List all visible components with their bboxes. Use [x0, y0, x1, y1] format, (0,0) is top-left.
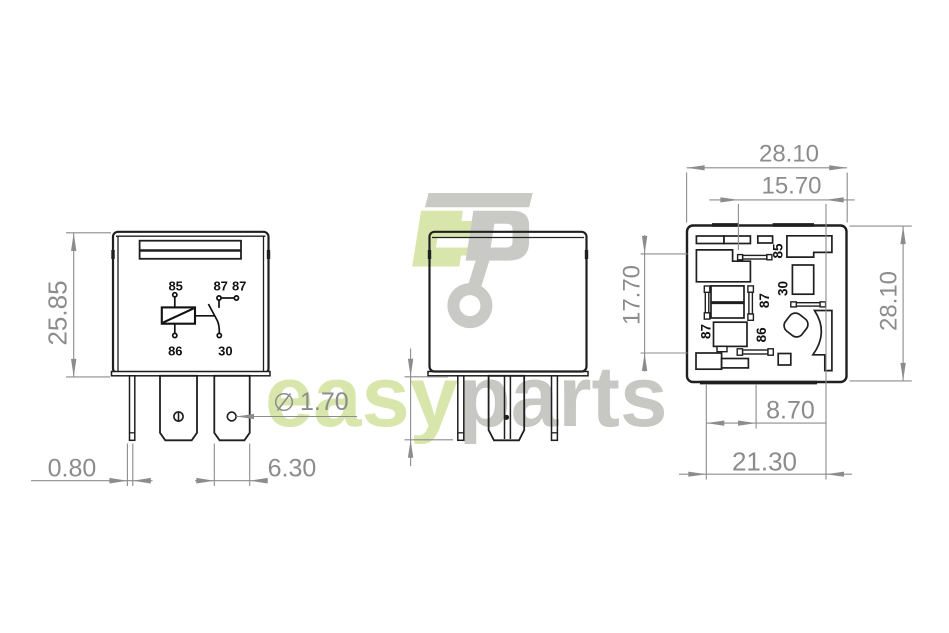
svg-text:28.10: 28.10 — [876, 271, 903, 331]
svg-text:86: 86 — [754, 327, 769, 343]
svg-text:86: 86 — [168, 343, 182, 358]
svg-text:30: 30 — [776, 281, 791, 296]
svg-text:1.70: 1.70 — [300, 388, 349, 416]
svg-text:87: 87 — [757, 293, 772, 308]
svg-text:15.70: 15.70 — [761, 173, 821, 200]
svg-text:28.10: 28.10 — [759, 141, 819, 168]
svg-text:85: 85 — [771, 243, 786, 259]
svg-text:25.85: 25.85 — [43, 280, 73, 345]
svg-text:87: 87 — [699, 324, 714, 339]
svg-text:0.80: 0.80 — [48, 455, 97, 483]
svg-text:6.30: 6.30 — [268, 455, 317, 483]
svg-text:30: 30 — [218, 343, 232, 358]
svg-text:87: 87 — [232, 279, 246, 294]
svg-text:8.70: 8.70 — [766, 397, 815, 425]
svg-text:21.30: 21.30 — [732, 447, 797, 477]
svg-text:85: 85 — [168, 279, 182, 294]
svg-text:87: 87 — [213, 279, 227, 294]
svg-text:17.70: 17.70 — [619, 265, 646, 325]
